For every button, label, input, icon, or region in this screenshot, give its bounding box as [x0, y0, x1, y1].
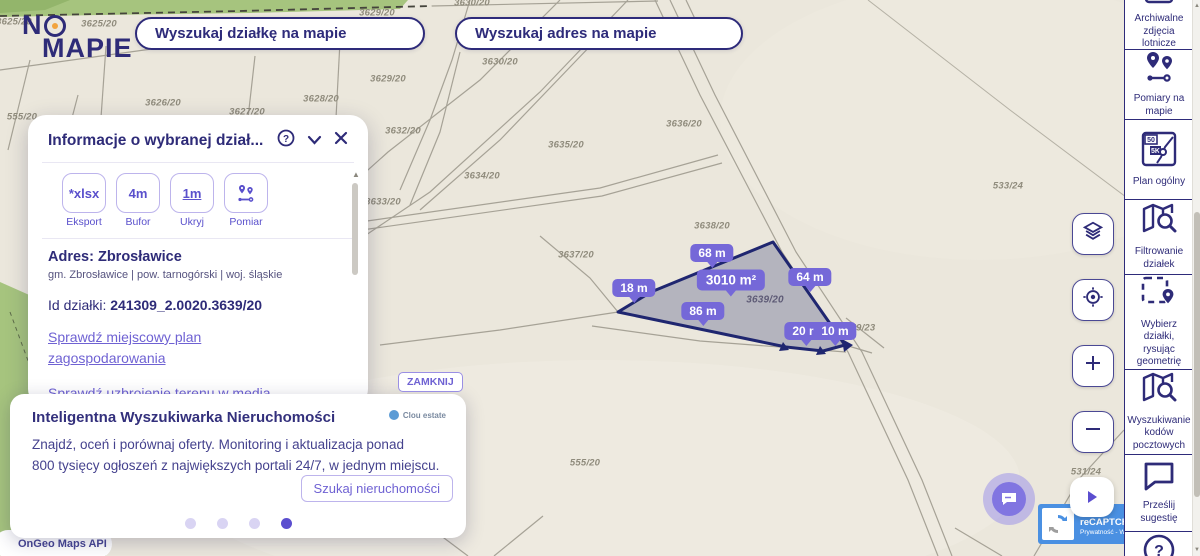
tool-ukryj-button[interactable]: 1m — [170, 173, 214, 213]
search-address-label: Wyszukaj adres na mapie — [475, 25, 656, 42]
chat-widget-button[interactable] — [983, 473, 1035, 525]
link-local-plan[interactable]: Sprawdź miejscowy plan zagospodarowania — [48, 327, 298, 369]
tool-ukryj: 1mUkryj — [168, 173, 216, 228]
tool-label: Eksport — [60, 216, 108, 228]
panel-scrollbar[interactable]: ▲ — [352, 171, 359, 371]
sidebar-item-label: Wyszukiwanie kodów pocztowych — [1127, 415, 1191, 453]
divider — [42, 238, 354, 239]
parcel-toolbar: *xlsxEksport4mBufor1mUkryjPomiar — [48, 173, 348, 228]
aerial-photos-icon — [1144, 0, 1174, 9]
banner-body-line2: 800 tysięcy ogłoszeń z największych port… — [32, 456, 444, 477]
tools-sidebar: Archiwalne zdjęcia lotniczePomiary na ma… — [1124, 0, 1193, 556]
collapse-chevron-icon[interactable] — [307, 132, 322, 150]
logo-letter: N — [22, 12, 42, 39]
measure-pins-icon — [235, 184, 257, 203]
carousel-dots — [10, 518, 466, 529]
sidebar-item-label: Archiwalne zdjęcia lotnicze — [1127, 13, 1191, 50]
parcel-address: Adres: Zbrosławice — [48, 249, 348, 265]
sidebar-item-archiwalne[interactable]: Archiwalne zdjęcia lotnicze — [1125, 0, 1193, 50]
divider — [42, 162, 354, 163]
sidebar-item-pomiary[interactable]: Pomiary na mapie — [1125, 50, 1193, 120]
sidebar-item-kody-pocztowe[interactable]: Wyszukiwanie kodów pocztowych — [1125, 370, 1193, 455]
scroll-down-icon[interactable]: ▼ — [1193, 547, 1200, 553]
sidebar-item-label: Pomiary na mapie — [1127, 93, 1191, 118]
scroll-up-icon[interactable]: ▲ — [1193, 3, 1200, 9]
tool-glyph: 4m — [129, 186, 148, 201]
search-parcel-label: Wyszukaj działkę na mapie — [155, 25, 346, 42]
parcel-id: Id działki: 241309_2.0020.3639/20 — [48, 297, 348, 313]
zoom-in-button[interactable] — [1072, 345, 1114, 387]
svg-text:?: ? — [1154, 543, 1164, 556]
tool-eksport-button[interactable]: *xlsx — [62, 173, 106, 213]
tool-pomiar-button[interactable] — [224, 173, 268, 213]
play-icon — [1088, 491, 1097, 503]
sidebar-item-label: Plan ogólny — [1127, 176, 1191, 189]
tool-glyph: 1m — [183, 186, 202, 201]
parcel-address-detail: gm. Zbrosławice | pow. tarnogórski | woj… — [48, 269, 348, 281]
carousel-dot-3[interactable] — [281, 518, 292, 529]
tool-pomiar: Pomiar — [222, 173, 270, 228]
sidebar-item-label: Prześlij sugestię — [1127, 500, 1191, 525]
search-parcel-button[interactable]: Wyszukaj działkę na mapie — [135, 17, 425, 50]
recaptcha-icon — [1042, 508, 1074, 540]
minus-icon — [1084, 420, 1102, 444]
app-logo[interactable]: N MAPIE — [22, 12, 133, 62]
search-properties-button[interactable]: Szukaj nieruchomości — [301, 475, 453, 502]
sidebar-item-pomoc[interactable]: ? — [1125, 532, 1193, 556]
sidebar-item-label: Filtrowanie działek — [1127, 246, 1191, 271]
carousel-dot-2[interactable] — [249, 518, 260, 529]
tool-bufor-button[interactable]: 4m — [116, 173, 160, 213]
zoom-out-button[interactable] — [1072, 411, 1114, 453]
layers-icon — [1082, 220, 1104, 248]
banner-title: Inteligentna Wyszukiwarka Nieruchomości — [32, 409, 444, 426]
promo-banner: Inteligentna Wyszukiwarka Nieruchomości … — [10, 394, 466, 538]
sidebar-item-sugestia[interactable]: Prześlij sugestię — [1125, 455, 1193, 532]
page-scrollbar[interactable]: ▲ ▼ — [1192, 0, 1200, 556]
carousel-dot-0[interactable] — [185, 518, 196, 529]
tool-glyph: *xlsx — [69, 186, 99, 201]
tool-bufor: 4mBufor — [114, 173, 162, 228]
chat-bubble-icon — [992, 482, 1026, 516]
expand-widget-button[interactable] — [1070, 477, 1114, 517]
brand-dot-icon — [389, 410, 399, 420]
scroll-thumb[interactable] — [1194, 212, 1200, 497]
panel-title: Informacje o wybranej dział... — [48, 132, 277, 150]
sidebar-item-plan-ogolny[interactable]: 505KPlan ogólny — [1125, 120, 1193, 200]
tool-eksport: *xlsxEksport — [60, 173, 108, 228]
help-icon: ? — [1142, 533, 1176, 556]
sidebar-item-label: Wybierz działki, rysując geometrię — [1127, 319, 1191, 369]
brand-name: Clou estate — [403, 411, 446, 420]
banner-body-line1: Znajdź, oceń i porównaj oferty. Monitori… — [32, 435, 444, 456]
plus-icon — [1084, 354, 1102, 378]
suggestion-icon — [1142, 461, 1176, 496]
brand-logo: Clou estate — [389, 410, 446, 420]
close-panel-button[interactable]: ZAMKNIJ — [398, 372, 463, 392]
close-icon[interactable] — [334, 131, 348, 150]
svg-text:5K: 5K — [1151, 148, 1160, 155]
svg-text:?: ? — [283, 134, 289, 145]
sidebar-item-filtrowanie[interactable]: Filtrowanie działek — [1125, 200, 1193, 275]
general-plan-icon: 505K — [1141, 131, 1177, 172]
svg-text:50: 50 — [1147, 137, 1155, 144]
layers-button[interactable] — [1072, 213, 1114, 255]
tool-label: Ukryj — [168, 216, 216, 228]
draw-geometry-icon — [1141, 276, 1177, 315]
carousel-dot-1[interactable] — [217, 518, 228, 529]
app-root: 3625/203625/203629/203630/203630/203629/… — [0, 0, 1200, 556]
logo-pin-icon — [44, 15, 66, 37]
postal-codes-icon — [1141, 372, 1177, 411]
logo-word: MAPIE — [42, 35, 133, 62]
locate-icon — [1082, 286, 1104, 314]
sidebar-item-wybierz-geometria[interactable]: Wybierz działki, rysując geometrię — [1125, 275, 1193, 370]
filter-parcels-icon — [1141, 203, 1177, 242]
parcel-info-panel: Informacje o wybranej dział... ? *xlsxEk… — [28, 115, 368, 407]
tool-label: Pomiar — [222, 216, 270, 228]
help-icon[interactable]: ? — [277, 129, 295, 152]
tool-label: Bufor — [114, 216, 162, 228]
search-address-button[interactable]: Wyszukaj adres na mapie — [455, 17, 743, 50]
measurements-icon — [1142, 51, 1176, 89]
locate-button[interactable] — [1072, 279, 1114, 321]
